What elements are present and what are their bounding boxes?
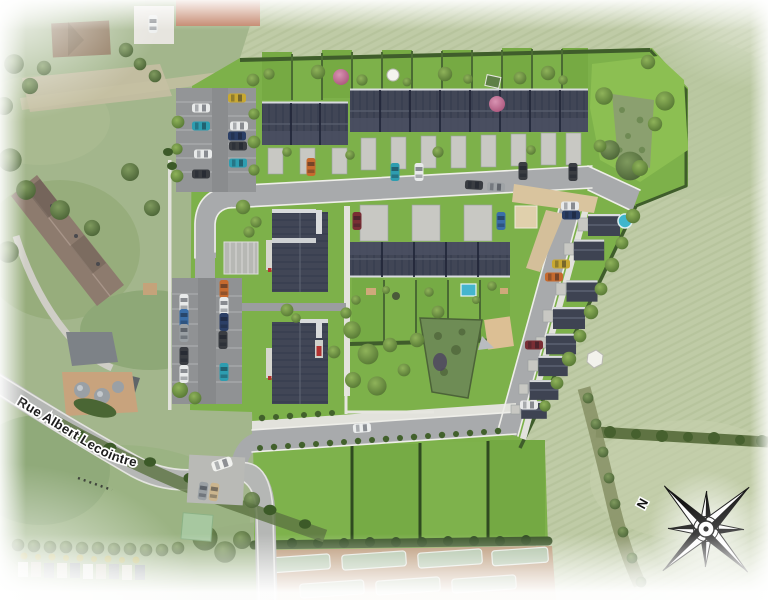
map-canvas: Rue Albert Lecointre (0, 0, 768, 600)
pool-icon (461, 284, 476, 296)
green-roof-building (181, 513, 213, 542)
middle-house-row (350, 205, 510, 278)
parasol-icon (387, 69, 399, 81)
garden-shed (143, 283, 157, 295)
shed-icon (485, 75, 501, 89)
existing-roof-north (176, 0, 260, 26)
aerial-site-plan: Rue Albert Lecointre (0, 0, 768, 600)
garage-block (224, 242, 258, 274)
south-plots (254, 535, 556, 600)
